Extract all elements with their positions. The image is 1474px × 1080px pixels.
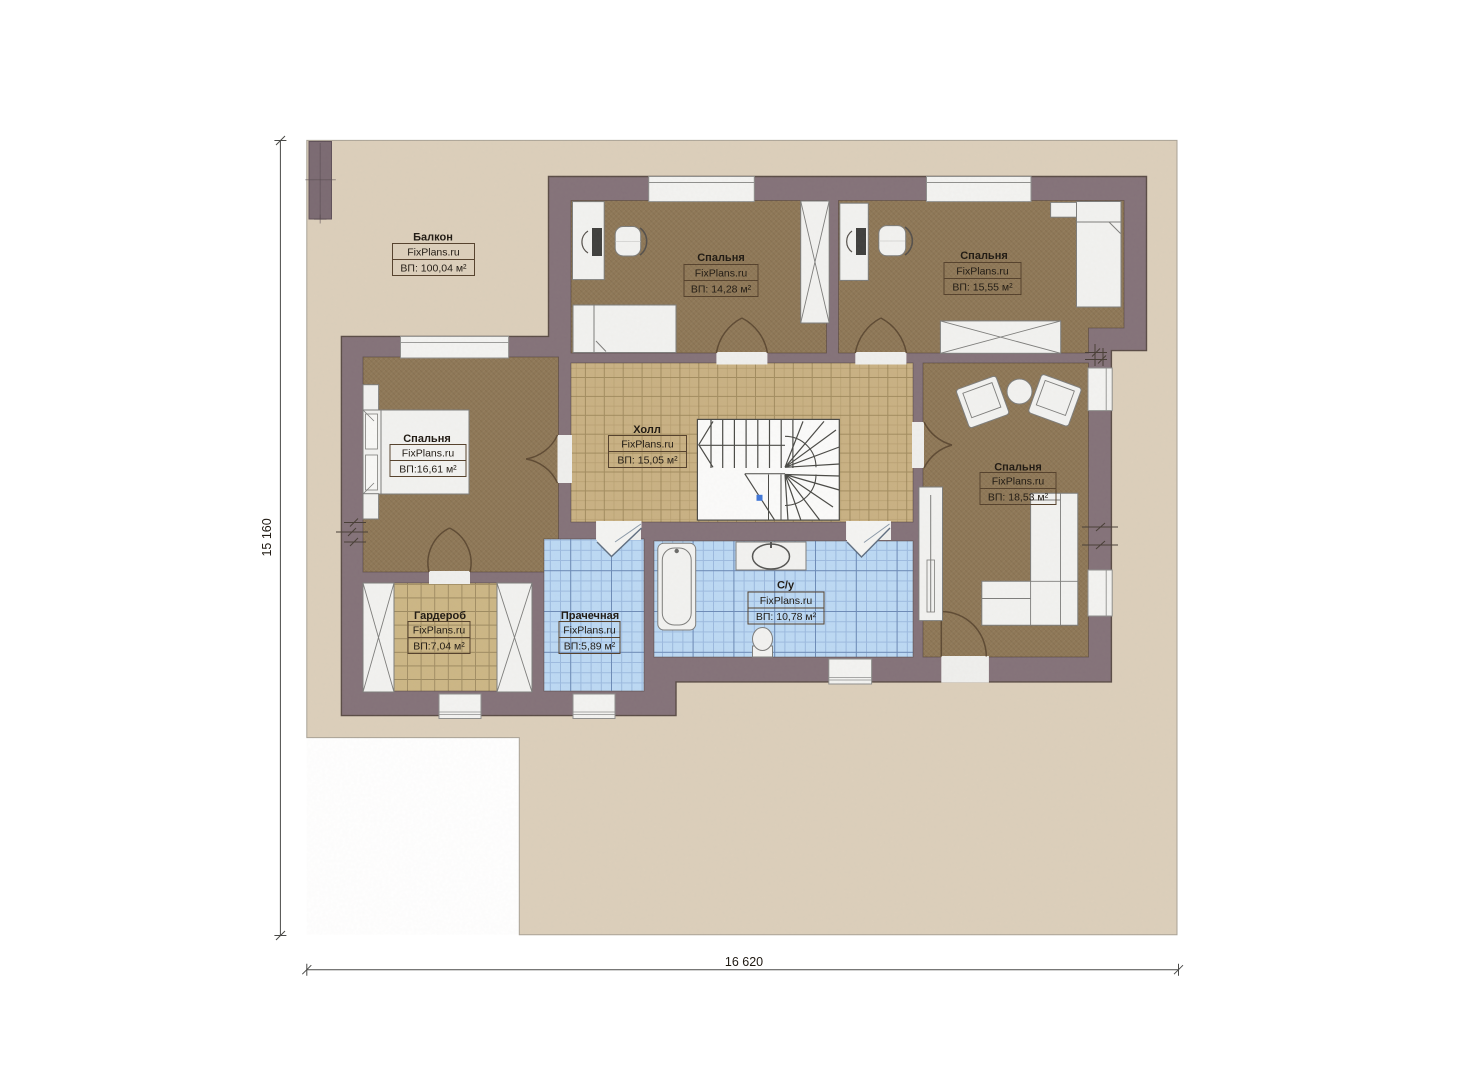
svg-text:16 620: 16 620 [725, 955, 763, 969]
svg-text:15 160: 15 160 [260, 518, 274, 556]
